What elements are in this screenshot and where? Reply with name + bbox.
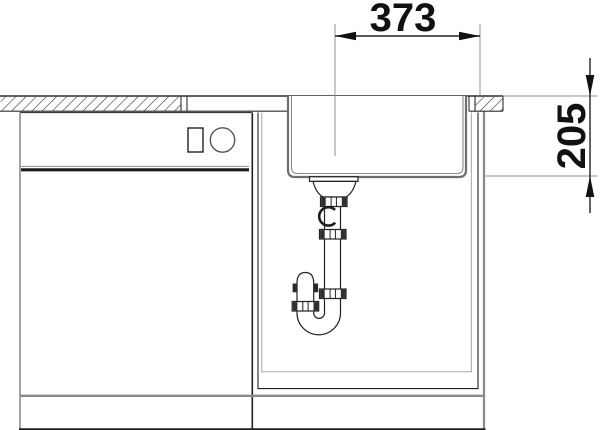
technical-drawing-canvas: 373 205	[0, 0, 600, 430]
arrowhead-right	[459, 32, 480, 41]
strainer-cup	[313, 181, 356, 197]
cap-ear-right	[314, 284, 318, 293]
arrowhead-bottom	[586, 176, 595, 197]
countertop-hatch-left	[1, 97, 182, 111]
countertop-hatch-right	[475, 97, 503, 111]
cap-ear-left	[293, 284, 297, 293]
tailpipe-curl-joint	[319, 207, 335, 225]
sink-bowl-outer-wall	[288, 96, 466, 177]
drain-nut-3	[320, 289, 347, 299]
drain-nut-1	[321, 197, 348, 207]
dimension-depth: 205	[485, 58, 598, 213]
trap-cleanout-cap	[297, 273, 314, 284]
appliance-display	[188, 128, 203, 152]
drain-nut-4	[292, 302, 319, 312]
sink-section-drawing: 373 205	[0, 0, 600, 430]
drain-nut-2	[320, 230, 347, 240]
appliance-knob	[210, 128, 234, 152]
sink-bowl	[288, 96, 466, 177]
dimension-width-label: 373	[370, 0, 437, 40]
arrowhead-left	[335, 32, 356, 41]
dimension-depth-label: 205	[550, 103, 594, 170]
strainer-flange	[310, 177, 359, 182]
arrowhead-top	[586, 75, 595, 96]
appliance-front-left-cabinet	[20, 113, 252, 430]
drain-assembly	[292, 177, 358, 335]
